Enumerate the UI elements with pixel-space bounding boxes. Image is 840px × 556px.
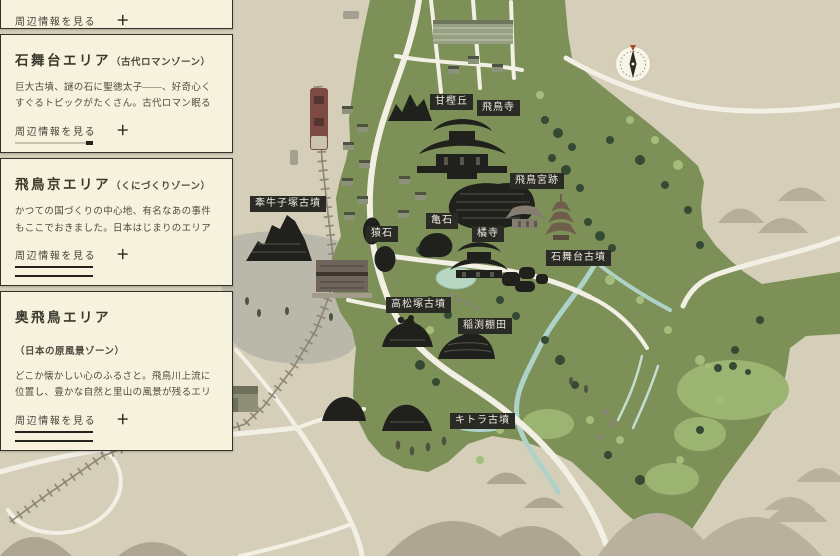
see-more-label: 周辺情報を見る (15, 247, 96, 262)
area-description: かつての国づくりの中心地、有名なあの事件もここでおきました。日本はじまりのエリア… (15, 204, 218, 238)
map-label-kengoshizuka-tomb[interactable]: 牽牛子塚古墳 (250, 196, 326, 212)
area-info-sidebar: 周辺情報を見る ＋ 石舞台エリア（古代ロマンゾーン） 巨大古墳、謎の石に聖徳太子… (0, 0, 233, 456)
plus-icon: ＋ (116, 14, 129, 27)
area-card-title: 奥飛鳥エリア（日本の原風景ゾーン） (15, 300, 218, 362)
see-more-label: 周辺情報を見る (15, 123, 96, 138)
link-underline (15, 142, 93, 144)
train (310, 88, 328, 150)
area-description: どこか懐かしい心のふるさと。飛鳥川上流に位置し、豊かな自然と里山の風景が残るエリ… (15, 369, 218, 403)
map-label-inabuchi-terraces[interactable]: 稲渕棚田 (458, 318, 512, 334)
area-card-title: 飛鳥京エリア（くにづくりゾーン） (15, 167, 218, 198)
link-underline (15, 431, 93, 442)
see-more-label: 周辺情報を見る (15, 13, 96, 28)
area-title: 石舞台エリア (15, 53, 111, 68)
area-title: 飛鳥京エリア (15, 177, 111, 192)
plus-icon: ＋ (116, 248, 129, 261)
see-more-link[interactable]: 周辺情報を見る ＋ (15, 412, 218, 427)
map-label-kameishi-stone[interactable]: 亀石 (426, 213, 458, 229)
area-card-title: 石舞台エリア（古代ロマンゾーン） (15, 43, 218, 74)
area-zone: （日本の原風景ゾーン） (15, 347, 125, 357)
area-card-asukakyo: 飛鳥京エリア（くにづくりゾーン） かつての国づくりの中心地、有名なあの事件もここ… (0, 158, 233, 286)
area-card-okuasuka: 奥飛鳥エリア（日本の原風景ゾーン） どこか懐かしい心のふるさと。飛鳥川上流に位置… (0, 291, 233, 450)
map-label-asuka-palace-site[interactable]: 飛鳥宮跡 (510, 173, 564, 189)
link-underline (15, 266, 93, 277)
area-zone: （くにづくりゾーン） (111, 182, 211, 192)
map-label-takamatsuzuka-tomb[interactable]: 高松塚古墳 (386, 297, 451, 313)
asuka-illustrated-map-page: 甘樫丘 飛鳥寺 飛鳥宮跡 牽牛子塚古墳 亀石 猿石 橘寺 石舞台古墳 高松塚古墳… (0, 0, 840, 556)
map-label-tachibanadera[interactable]: 橘寺 (472, 226, 504, 242)
map-label-kitora-tomb[interactable]: キトラ古墳 (450, 413, 515, 429)
area-card-ishibutai: 石舞台エリア（古代ロマンゾーン） 巨大古墳、謎の石に聖徳太子――、好奇心くすぐる… (0, 34, 233, 153)
area-title: 奥飛鳥エリア (15, 310, 111, 325)
area-description: 巨大古墳、謎の石に聖徳太子――、好奇心くすぐるトピックがたくさん。古代ロマン眠る… (15, 80, 218, 114)
plus-icon: ＋ (116, 413, 129, 426)
see-more-link[interactable]: 周辺情報を見る ＋ (15, 13, 218, 28)
map-label-ishibutai-tomb[interactable]: 石舞台古墳 (546, 250, 611, 266)
map-label-amakashi-hill[interactable]: 甘樫丘 (430, 94, 473, 110)
map-label-asukadera-temple[interactable]: 飛鳥寺 (477, 100, 520, 116)
see-more-link[interactable]: 周辺情報を見る ＋ (15, 247, 218, 262)
area-zone: （古代ロマンゾーン） (111, 58, 211, 68)
map-label-saruishi-stones[interactable]: 猿石 (366, 226, 398, 242)
area-card-peek: 周辺情報を見る ＋ (0, 0, 233, 29)
see-more-label: 周辺情報を見る (15, 412, 96, 427)
see-more-link[interactable]: 周辺情報を見る ＋ (15, 123, 218, 138)
plus-icon: ＋ (116, 124, 129, 137)
